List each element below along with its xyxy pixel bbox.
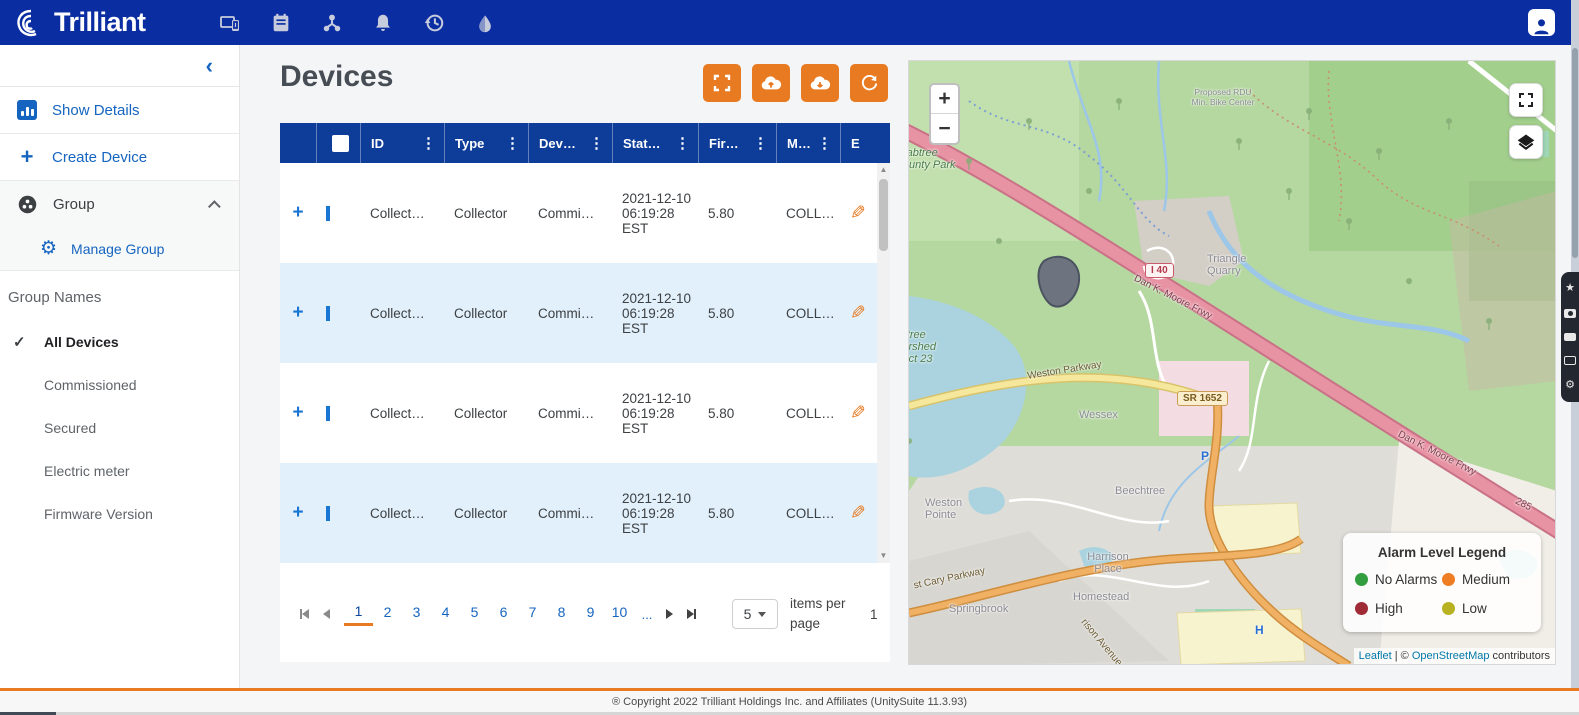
edit-pencil-icon[interactable]: ✎ xyxy=(850,502,866,525)
cell-dev: Commi… xyxy=(528,206,612,221)
cell-id: Collect… xyxy=(360,406,444,421)
edit-pencil-icon[interactable]: ✎ xyxy=(850,302,866,325)
sidebar-item-create-device[interactable]: + Create Device xyxy=(0,134,239,181)
extension-side-panel: ★ ⚙ xyxy=(1561,272,1579,402)
map-label-harrison-place: Harrison Place xyxy=(1077,551,1139,575)
col-stat-label: Stat… xyxy=(623,136,661,151)
expand-row-icon[interactable]: + xyxy=(280,402,316,424)
table-row: + Collect… Collector Commi… 2021-12-10 0… xyxy=(280,463,890,563)
green-dot-icon xyxy=(1355,573,1368,586)
orange-dot-icon xyxy=(1442,573,1455,586)
page-number[interactable]: 7 xyxy=(518,604,547,624)
group-item-label: Firmware Version xyxy=(44,506,153,522)
cell-stat: 2021-12-10 06:19:28 EST xyxy=(612,191,698,236)
star-icon[interactable]: ★ xyxy=(1565,283,1575,294)
water-drop-icon[interactable] xyxy=(473,11,497,35)
expand-row-icon[interactable]: + xyxy=(280,202,316,224)
first-page-button[interactable] xyxy=(300,609,309,619)
page-size-value: 5 xyxy=(744,606,752,622)
cell-type: Collector xyxy=(444,306,528,321)
map-label-weston-pointe: Weston Pointe xyxy=(925,497,979,521)
camera-icon[interactable] xyxy=(1564,309,1576,318)
page-number[interactable]: 8 xyxy=(547,604,576,624)
legend-item-no-alarms: No Alarms xyxy=(1355,572,1442,587)
group-item-commissioned[interactable]: Commissioned xyxy=(0,363,239,406)
cell-fir: 5.80 xyxy=(698,206,776,221)
group-item-firmware-version[interactable]: Firmware Version xyxy=(0,492,239,535)
red-dot-icon xyxy=(1355,602,1368,615)
col-m-label: M… xyxy=(787,136,811,151)
item-range-text: 1 xyxy=(870,607,878,622)
legend-label: No Alarms xyxy=(1375,572,1437,587)
devices-icon[interactable] xyxy=(218,11,242,35)
col-type-label: Type xyxy=(455,136,484,151)
account-icon[interactable] xyxy=(1528,9,1555,36)
chevron-up-icon[interactable] xyxy=(208,200,221,213)
group-item-label: All Devices xyxy=(44,334,119,350)
next-page-button[interactable] xyxy=(666,609,673,619)
legend-label: High xyxy=(1375,601,1403,616)
table-row: + Collect… Collector Commi… 2021-12-10 0… xyxy=(280,263,890,363)
table-row: + Collect… Collector Commi… 2021-12-10 0… xyxy=(280,163,890,263)
network-icon[interactable] xyxy=(320,11,344,35)
page-title: Devices xyxy=(280,60,393,94)
map-zoom-control: + − xyxy=(929,83,960,145)
table-body: + Collect… Collector Commi… 2021-12-10 0… xyxy=(280,163,890,563)
map-shield-i40: I 40 xyxy=(1145,263,1174,278)
page-number[interactable]: 5 xyxy=(460,604,489,624)
map-label-homestead: Homestead xyxy=(1073,591,1129,603)
bar-chart-icon xyxy=(17,100,37,120)
sidebar: ‹ Show Details + Create Device Group ⚙ M… xyxy=(0,45,240,690)
app-window: Trilliant xyxy=(0,0,1579,715)
group-label: Group xyxy=(53,196,197,213)
chevron-down-icon xyxy=(758,612,766,617)
scrollbar-thumb[interactable] xyxy=(879,179,888,251)
manage-group-label: Manage Group xyxy=(71,241,164,257)
plus-icon: + xyxy=(17,146,37,168)
cell-stat: 2021-12-10 06:19:28 EST xyxy=(612,491,698,536)
scroll-up-icon[interactable]: ▲ xyxy=(880,163,888,177)
leaflet-link[interactable]: Leaflet xyxy=(1359,650,1392,662)
scrollbar-thumb[interactable] xyxy=(1572,48,1578,258)
group-icon xyxy=(17,194,38,215)
refresh-button[interactable] xyxy=(850,64,888,102)
map-layers-button[interactable] xyxy=(1509,125,1543,159)
column-menu-icon[interactable]: ⋮ xyxy=(587,134,606,152)
cell-stat: 2021-12-10 06:19:28 EST xyxy=(612,391,698,436)
map-hospital-icon: H xyxy=(1255,623,1264,637)
row-checkbox[interactable] xyxy=(326,406,330,421)
legend-title: Alarm Level Legend xyxy=(1355,545,1529,560)
group-names-header: Group Names xyxy=(0,271,239,306)
fullscreen-icon xyxy=(1519,93,1533,107)
group-item-label: Commissioned xyxy=(44,377,137,393)
history-icon[interactable] xyxy=(422,11,446,35)
cloud-download-button[interactable] xyxy=(801,64,839,102)
schedule-icon[interactable] xyxy=(269,11,293,35)
page-number[interactable]: 4 xyxy=(431,604,460,624)
sidebar-collapse-icon[interactable]: ‹ xyxy=(206,55,213,77)
zoom-in-button[interactable]: + xyxy=(931,85,958,114)
gear-icon: ⚙ xyxy=(40,239,57,258)
page-number[interactable]: 9 xyxy=(576,604,605,624)
items-per-page-label: items per page xyxy=(790,594,852,635)
devices-table-card: ID⋮ Type⋮ Dev…⋮ Stat…⋮ Fir…⋮ M…⋮ E + Col… xyxy=(280,123,890,662)
top-navbar: Trilliant xyxy=(0,0,1579,45)
edit-pencil-icon[interactable]: ✎ xyxy=(850,202,866,225)
column-menu-icon[interactable]: ⋮ xyxy=(815,134,834,152)
cell-fir: 5.80 xyxy=(698,506,776,521)
map-label-proposed-bike-center: Proposed RDU Min. Bike Center xyxy=(1187,87,1259,107)
legend-item-low: Low xyxy=(1442,601,1529,616)
last-page-button[interactable] xyxy=(687,609,696,619)
create-device-label: Create Device xyxy=(52,149,147,166)
settings-gear-icon[interactable]: ⚙ xyxy=(1565,380,1575,391)
page-size-select[interactable]: 5 xyxy=(732,599,778,629)
pagination: 1 2 3 4 5 6 7 8 9 10 ... 5 items per pag… xyxy=(280,584,890,644)
osm-link[interactable]: OpenStreetMap xyxy=(1412,650,1490,662)
map-panel[interactable]: Crabtree County Park Crabtree Watershed … xyxy=(908,60,1556,665)
devices-toolbar xyxy=(703,64,888,102)
layers-icon xyxy=(1516,132,1536,152)
zoom-out-button[interactable]: − xyxy=(931,114,958,143)
prev-page-button[interactable] xyxy=(323,609,330,619)
legend-label: Medium xyxy=(1462,572,1510,587)
col-id-label: ID xyxy=(371,136,384,151)
scroll-down-icon[interactable]: ▼ xyxy=(880,549,888,563)
col-fir-label: Fir… xyxy=(709,136,739,151)
page-number[interactable]: 3 xyxy=(402,604,431,624)
cell-fir: 5.80 xyxy=(698,306,776,321)
cell-dev: Commi… xyxy=(528,506,612,521)
map-label-triangle-quarry: Triangle Quarry xyxy=(1207,253,1267,277)
cell-id: Collect… xyxy=(360,506,444,521)
map-label-springbrook: Springbrook xyxy=(949,603,1008,615)
group-item-all-devices[interactable]: ✓ All Devices xyxy=(0,320,239,363)
expand-row-icon[interactable]: + xyxy=(280,302,316,324)
sidebar-group-header[interactable]: Group xyxy=(0,181,239,227)
legend-label: Low xyxy=(1462,601,1487,616)
column-menu-icon[interactable]: ⋮ xyxy=(503,134,522,152)
column-menu-icon[interactable]: ⋮ xyxy=(673,134,692,152)
page-ellipsis[interactable]: ... xyxy=(634,607,660,622)
table-header: ID⋮ Type⋮ Dev…⋮ Stat…⋮ Fir…⋮ M…⋮ E xyxy=(280,123,890,163)
video-icon[interactable] xyxy=(1564,333,1576,341)
alarms-bell-icon[interactable] xyxy=(371,11,395,35)
copyright-text: ® Copyright 2022 Trilliant Holdings Inc.… xyxy=(612,696,967,708)
cell-m: COLL… xyxy=(776,506,840,521)
cell-dev: Commi… xyxy=(528,406,612,421)
map-label-beechtree: Beechtree xyxy=(1115,485,1165,497)
sidebar-item-show-details[interactable]: Show Details xyxy=(0,87,239,134)
cell-fir: 5.80 xyxy=(698,406,776,421)
alarm-legend: Alarm Level Legend No Alarms Medium High… xyxy=(1343,533,1541,632)
cell-m: COLL… xyxy=(776,206,840,221)
map-parking-icon: P xyxy=(1201,449,1209,463)
show-details-label: Show Details xyxy=(52,102,140,119)
legend-item-high: High xyxy=(1355,601,1442,616)
legend-item-medium: Medium xyxy=(1442,572,1529,587)
group-item-label: Secured xyxy=(44,420,96,436)
page-number[interactable]: 1 xyxy=(344,603,373,626)
map-shield-sr1652: SR 1652 xyxy=(1177,391,1228,406)
page-number[interactable]: 6 xyxy=(489,604,518,624)
row-checkbox[interactable] xyxy=(326,506,330,521)
yellow-dot-icon xyxy=(1442,602,1455,615)
map-label-wessex: Wessex xyxy=(1079,409,1118,421)
col-e-label: E xyxy=(851,136,860,151)
map-fullscreen-button[interactable] xyxy=(1509,83,1543,117)
cell-type: Collector xyxy=(444,406,528,421)
cell-m: COLL… xyxy=(776,306,840,321)
cell-id: Collect… xyxy=(360,306,444,321)
footer: ® Copyright 2022 Trilliant Holdings Inc.… xyxy=(0,691,1579,713)
page-number[interactable]: 2 xyxy=(373,604,402,624)
fullscreen-button[interactable] xyxy=(703,64,741,102)
image-edit-icon[interactable] xyxy=(1564,356,1576,365)
cell-dev: Commi… xyxy=(528,306,612,321)
row-checkbox[interactable] xyxy=(326,206,330,221)
cell-type: Collector xyxy=(444,506,528,521)
expand-row-icon[interactable]: + xyxy=(280,502,316,524)
attribution-suffix: contributors xyxy=(1489,650,1550,662)
trilliant-logo-icon xyxy=(14,6,48,40)
column-menu-icon[interactable]: ⋮ xyxy=(419,134,438,152)
table-row: + Collect… Collector Commi… 2021-12-10 0… xyxy=(280,363,890,463)
table-scrollbar[interactable]: ▲ ▼ xyxy=(877,163,890,563)
group-item-label: Electric meter xyxy=(44,463,130,479)
map-attribution: Leaflet | © OpenStreetMap contributors xyxy=(1354,648,1555,664)
group-item-secured[interactable]: Secured xyxy=(0,406,239,449)
attribution-separator: | © xyxy=(1392,650,1412,662)
page-number[interactable]: 10 xyxy=(605,604,634,624)
sidebar-item-manage-group[interactable]: ⚙ Manage Group xyxy=(0,227,239,270)
map-label-crabtree-park: Crabtree County Park xyxy=(908,147,959,171)
brand[interactable]: Trilliant xyxy=(0,6,200,40)
cloud-upload-button[interactable] xyxy=(752,64,790,102)
map-label-watershed: Crabtree Watershed Project 23 xyxy=(908,329,961,365)
cell-m: COLL… xyxy=(776,406,840,421)
row-checkbox[interactable] xyxy=(326,306,330,321)
cell-id: Collect… xyxy=(360,206,444,221)
cell-type: Collector xyxy=(444,206,528,221)
column-menu-icon[interactable]: ⋮ xyxy=(751,134,770,152)
cell-stat: 2021-12-10 06:19:28 EST xyxy=(612,291,698,336)
edit-pencil-icon[interactable]: ✎ xyxy=(850,402,866,425)
col-dev-label: Dev… xyxy=(539,136,576,151)
check-icon: ✓ xyxy=(13,333,31,351)
group-item-electric-meter[interactable]: Electric meter xyxy=(0,449,239,492)
brand-name: Trilliant xyxy=(54,7,146,38)
select-all-checkbox[interactable] xyxy=(332,135,349,152)
